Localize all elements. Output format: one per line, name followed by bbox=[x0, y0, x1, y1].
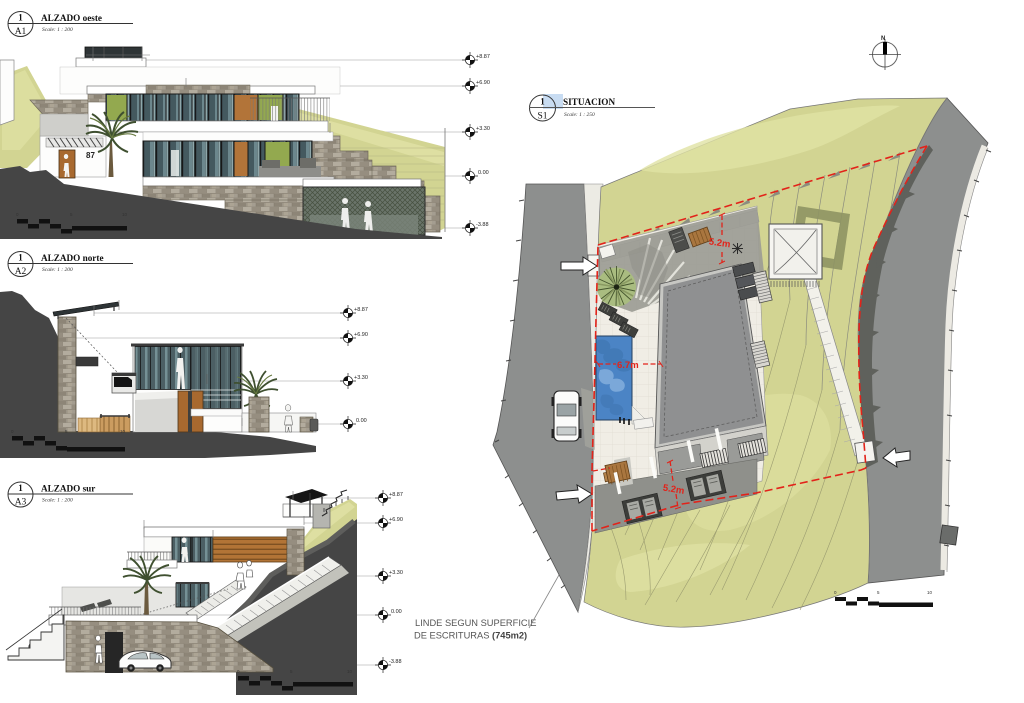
svg-text:10: 10 bbox=[120, 429, 126, 434]
svg-text:DE ESCRITURAS (745m2): DE ESCRITURAS (745m2) bbox=[414, 631, 527, 641]
svg-text:+3.30: +3.30 bbox=[476, 126, 490, 132]
svg-text:10: 10 bbox=[347, 669, 353, 674]
svg-text:0.00: 0.00 bbox=[391, 609, 402, 615]
svg-text:6.7m: 6.7m bbox=[617, 360, 639, 371]
svg-text:S1: S1 bbox=[537, 112, 547, 122]
svg-text:87: 87 bbox=[86, 151, 95, 160]
svg-text:-3.88: -3.88 bbox=[476, 222, 489, 228]
svg-text:ALZADO oeste: ALZADO oeste bbox=[41, 13, 102, 23]
svg-text:+3.30: +3.30 bbox=[354, 375, 368, 381]
svg-text:ALZADO norte: ALZADO norte bbox=[41, 253, 104, 263]
svg-text:A1: A1 bbox=[15, 27, 27, 37]
svg-text:1: 1 bbox=[18, 253, 23, 263]
svg-text:Scale: 1 : 200: Scale: 1 : 200 bbox=[42, 267, 73, 273]
svg-text:1: 1 bbox=[18, 483, 23, 493]
svg-text:+6.90: +6.90 bbox=[476, 80, 490, 86]
svg-text:+8.87: +8.87 bbox=[389, 492, 403, 498]
svg-text:Scale: 1 : 200: Scale: 1 : 200 bbox=[42, 498, 73, 504]
svg-text:0.00: 0.00 bbox=[356, 418, 367, 424]
svg-text:+8.87: +8.87 bbox=[354, 307, 368, 313]
svg-text:Scale: 1 : 250: Scale: 1 : 250 bbox=[564, 112, 595, 118]
svg-text:1: 1 bbox=[540, 97, 545, 107]
svg-text:LINDE SEGUN SUPERFICIE: LINDE SEGUN SUPERFICIE bbox=[415, 618, 536, 628]
svg-text:+6.90: +6.90 bbox=[354, 332, 368, 338]
svg-text:ALZADO sur: ALZADO sur bbox=[41, 484, 95, 494]
svg-text:-3.88: -3.88 bbox=[389, 659, 402, 665]
svg-text:0.00: 0.00 bbox=[478, 170, 489, 176]
svg-text:+6.90: +6.90 bbox=[389, 517, 403, 523]
svg-text:SITUACION: SITUACION bbox=[563, 97, 615, 107]
svg-text:Scale: 1 : 200: Scale: 1 : 200 bbox=[42, 27, 73, 33]
svg-text:10: 10 bbox=[927, 590, 933, 595]
svg-text:A2: A2 bbox=[15, 267, 27, 277]
svg-text:10: 10 bbox=[122, 212, 128, 217]
svg-text:+3.30: +3.30 bbox=[389, 570, 403, 576]
svg-text:+8.87: +8.87 bbox=[476, 54, 490, 60]
svg-text:1: 1 bbox=[18, 13, 23, 23]
svg-text:A3: A3 bbox=[15, 498, 27, 508]
